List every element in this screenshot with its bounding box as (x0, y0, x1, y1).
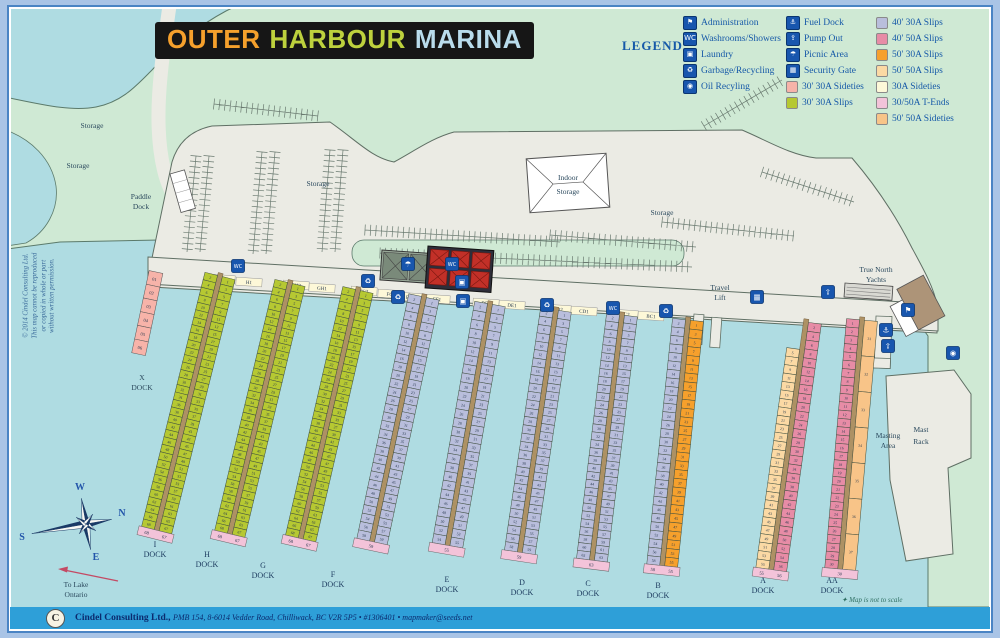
svg-text:41: 41 (769, 503, 773, 508)
title-word-outer: OUTER (167, 24, 261, 54)
svg-text:12: 12 (843, 413, 847, 417)
svg-text:46: 46 (657, 508, 661, 512)
svg-text:37: 37 (611, 456, 615, 460)
svg-text:17: 17 (552, 378, 556, 383)
svg-text:A: A (760, 576, 766, 585)
svg-text:24: 24 (600, 403, 604, 407)
svg-text:41: 41 (676, 499, 680, 503)
svg-text:WC: WC (609, 306, 618, 312)
legend-label: 30' 30A Slips (802, 98, 853, 108)
svg-text:28: 28 (528, 420, 532, 425)
svg-text:36: 36 (661, 466, 665, 470)
footer-bar: C Cindel Consulting Ltd., PMB 154, 8-601… (10, 607, 990, 629)
washrooms-icon: WC (683, 32, 697, 46)
svg-text:18: 18 (838, 463, 842, 467)
svg-text:51: 51 (671, 543, 675, 547)
svg-text:DOCK: DOCK (252, 571, 275, 580)
svg-text:54: 54 (585, 522, 589, 526)
svg-text:55: 55 (455, 541, 460, 546)
pump-out-icon: ⇪ (822, 286, 835, 299)
svg-text:22: 22 (835, 496, 839, 500)
svg-text:42: 42 (787, 503, 791, 508)
svg-text:52: 52 (781, 547, 785, 552)
legend-label: 30A Sideties (892, 82, 940, 92)
svg-text:♻: ♻ (544, 301, 551, 310)
pump-out-icon: ⇪ (882, 340, 895, 353)
svg-text:53: 53 (670, 552, 674, 556)
svg-text:29: 29 (545, 427, 549, 432)
svg-text:23: 23 (684, 420, 688, 424)
svg-text:34: 34 (524, 445, 528, 450)
laundry-icon: ▣ (683, 48, 697, 62)
svg-text:54: 54 (653, 542, 657, 546)
svg-text:51: 51 (458, 523, 463, 528)
svg-text:20: 20 (801, 405, 805, 410)
svg-text:45: 45 (608, 487, 612, 491)
svg-text:32: 32 (454, 439, 459, 444)
legend-item: WCWashrooms/Showers (683, 32, 781, 46)
svg-text:18: 18 (465, 376, 470, 381)
svg-text:50: 50 (655, 525, 659, 529)
svg-text:17: 17 (484, 377, 489, 382)
svg-text:44: 44 (658, 499, 662, 503)
washrooms-icon: WC (232, 260, 245, 273)
legend-label: 50' 50A Slips (892, 66, 943, 76)
svg-text:39: 39 (539, 467, 543, 472)
svg-text:12: 12 (538, 353, 542, 358)
svg-text:18: 18 (603, 379, 607, 383)
svg-text:18: 18 (669, 389, 673, 393)
svg-text:G: G (260, 561, 266, 570)
svg-text:50: 50 (440, 519, 445, 524)
svg-text:47: 47 (461, 506, 466, 511)
svg-text:21: 21 (685, 411, 689, 415)
svg-text:24: 24 (667, 415, 671, 419)
svg-text:16: 16 (536, 369, 540, 374)
sidetie-GH1: GH1 (309, 283, 335, 293)
swatch-sidetieA (876, 81, 888, 93)
footer-details: PMB 154, 8-6014 Vedder Road, Chilliwack,… (173, 613, 473, 622)
svg-text:22: 22 (668, 406, 672, 410)
garbage-recycling-icon: ♻ (660, 305, 673, 318)
garbage-recycling-icon: ♻ (683, 64, 697, 78)
svg-text:22: 22 (800, 414, 804, 419)
svg-text:53: 53 (456, 532, 461, 537)
svg-text:39: 39 (770, 495, 774, 500)
swatch-sidetie30 (786, 81, 798, 93)
svg-text:45: 45 (767, 520, 771, 525)
svg-text:21: 21 (481, 394, 486, 399)
svg-text:21: 21 (836, 488, 840, 492)
svg-text:GH1: GH1 (317, 287, 328, 293)
copyright-line: or copied in whole or part (40, 214, 49, 378)
svg-text:32: 32 (596, 435, 600, 439)
swatch-tend (876, 97, 888, 109)
legend-label: 30/50A T-Ends (892, 98, 949, 108)
svg-text:DE1: DE1 (507, 304, 517, 310)
svg-text:47: 47 (607, 494, 611, 498)
svg-text:43: 43 (609, 479, 613, 483)
svg-text:31: 31 (544, 435, 548, 440)
map-title: OUTERHARBOURMARINA (155, 22, 534, 59)
svg-text:42: 42 (591, 474, 595, 478)
svg-text:⚑: ⚑ (905, 306, 912, 315)
svg-text:39: 39 (467, 472, 472, 477)
legend-label: Washrooms/Showers (701, 34, 781, 44)
svg-text:32: 32 (793, 458, 797, 463)
map-label: Storage (67, 161, 91, 170)
legend-label: Oil Recyling (701, 82, 750, 92)
svg-text:16: 16 (840, 446, 844, 450)
legend-item: 30' 30A Sideties (786, 80, 864, 94)
svg-text:11: 11 (556, 354, 560, 359)
pump-out-icon: ⇪ (786, 32, 800, 46)
svg-text:33: 33 (472, 446, 477, 451)
sidetie-H1: H1 (236, 277, 262, 287)
svg-text:44: 44 (445, 493, 450, 498)
svg-text:30: 30 (830, 562, 834, 566)
svg-text:50: 50 (587, 506, 591, 510)
svg-text:29: 29 (830, 554, 834, 558)
svg-text:49: 49 (606, 502, 610, 506)
map-label: Travel (710, 283, 729, 292)
svg-text:47: 47 (765, 528, 769, 533)
svg-text:WC: WC (234, 264, 243, 270)
svg-text:27: 27 (616, 418, 620, 422)
svg-text:35: 35 (773, 478, 777, 483)
svg-text:◉: ◉ (950, 349, 957, 358)
svg-text:56: 56 (511, 537, 515, 542)
map-label: Dock (133, 202, 149, 211)
svg-text:11: 11 (843, 405, 847, 409)
title-word-marina: MARINA (415, 24, 522, 54)
legend-services-column: ⚓Fuel Dock⇪Pump Out☂Picnic Area▦Security… (786, 16, 864, 110)
svg-text:WC: WC (448, 262, 457, 268)
svg-text:♻: ♻ (663, 307, 670, 316)
svg-text:▣: ▣ (458, 278, 465, 287)
svg-text:35: 35 (470, 454, 475, 459)
svg-text:38: 38 (593, 458, 597, 462)
svg-text:33: 33 (543, 443, 547, 448)
map-label: To Lake (64, 580, 89, 589)
svg-text:33: 33 (680, 464, 684, 468)
svg-text:N: N (118, 508, 126, 519)
svg-text:53: 53 (531, 524, 535, 529)
map-label: Rack (913, 437, 929, 446)
svg-text:BC1: BC1 (646, 315, 656, 321)
svg-text:52: 52 (654, 533, 658, 537)
svg-text:31: 31 (681, 455, 685, 459)
svg-text:45: 45 (674, 517, 678, 521)
legend-item: ▣Laundry (683, 48, 781, 62)
svg-text:17: 17 (621, 379, 625, 383)
svg-text:55: 55 (669, 560, 673, 564)
true-north-yachts-building (844, 283, 893, 300)
svg-text:41: 41 (465, 480, 470, 485)
svg-text:DOCK: DOCK (144, 550, 167, 559)
svg-text:C: C (585, 579, 590, 588)
svg-text:14: 14 (469, 359, 474, 364)
garbage-recycling-icon: ♻ (362, 275, 375, 288)
svg-text:40: 40 (592, 466, 596, 470)
svg-text:24: 24 (798, 423, 802, 428)
svg-text:15: 15 (622, 372, 626, 376)
legend-slips-column: 40' 30A Slips40' 50A Slips50' 30A Slips5… (876, 16, 954, 126)
svg-text:24: 24 (531, 403, 535, 408)
svg-text:31: 31 (614, 433, 618, 437)
svg-text:35: 35 (542, 451, 546, 456)
not-to-scale-note: ✦ Map is not to scale (842, 596, 903, 604)
legend-label: 50' 30A Slips (892, 50, 943, 60)
svg-text:12: 12 (606, 356, 610, 360)
svg-text:50: 50 (782, 538, 786, 543)
svg-text:39: 39 (610, 464, 614, 468)
map-label: DOCK (131, 383, 153, 392)
svg-text:40: 40 (788, 494, 792, 499)
svg-text:11: 11 (787, 376, 791, 380)
svg-text:13: 13 (842, 421, 846, 425)
cindel-logo: C (46, 609, 65, 628)
svg-text:52: 52 (513, 520, 517, 525)
legend-item: ▦Security Gate (786, 64, 864, 78)
copyright-line: © 2014 Cindel Consulting Ltd. (22, 214, 31, 378)
svg-text:16: 16 (467, 368, 472, 373)
svg-text:56: 56 (779, 565, 783, 570)
legend: LEGEND ⚑AdministrationWCWashrooms/Shower… (605, 12, 995, 142)
svg-text:24: 24 (834, 513, 838, 517)
svg-text:40: 40 (521, 470, 525, 475)
svg-text:55: 55 (529, 532, 533, 537)
swatch-sidetie50_50 (876, 113, 888, 125)
svg-text:34: 34 (858, 444, 862, 448)
legend-item: ◉Oil Recyling (683, 80, 781, 94)
svg-text:23: 23 (618, 402, 622, 406)
sidetie-CD1: CD1 (571, 306, 597, 316)
legend-label: Fuel Dock (804, 18, 844, 28)
svg-text:10: 10 (472, 341, 477, 346)
svg-text:15: 15 (554, 370, 558, 375)
svg-text:25: 25 (617, 410, 621, 414)
svg-text:H: H (204, 550, 210, 559)
svg-text:35: 35 (612, 448, 616, 452)
svg-text:☂: ☂ (405, 260, 412, 269)
svg-text:62: 62 (581, 553, 585, 557)
svg-text:48: 48 (442, 511, 447, 516)
svg-text:39: 39 (677, 490, 681, 494)
svg-text:26: 26 (666, 423, 670, 427)
svg-text:49: 49 (459, 515, 464, 520)
svg-text:DOCK: DOCK (436, 585, 459, 594)
garbage-recycling-icon: ♻ (541, 299, 554, 312)
footer-company: Cindel Consulting Ltd., (75, 613, 171, 623)
legend-item: ☂Picnic Area (786, 48, 864, 62)
svg-text:44: 44 (786, 512, 790, 517)
svg-text:20: 20 (837, 479, 841, 483)
svg-text:27: 27 (476, 420, 481, 425)
swatch-slip50_30 (876, 49, 888, 61)
svg-text:43: 43 (537, 483, 541, 488)
svg-text:DOCK: DOCK (322, 580, 345, 589)
svg-text:49: 49 (764, 537, 768, 542)
svg-text:14: 14 (671, 372, 675, 376)
svg-text:37: 37 (771, 486, 775, 491)
svg-text:48: 48 (588, 498, 592, 502)
svg-text:23: 23 (549, 402, 553, 407)
svg-text:♻: ♻ (395, 293, 402, 302)
svg-text:31: 31 (775, 461, 779, 466)
svg-text:10: 10 (673, 355, 677, 359)
svg-text:38: 38 (660, 474, 664, 478)
legend-label: 30' 30A Sideties (802, 82, 864, 92)
svg-text:42: 42 (659, 491, 663, 495)
svg-text:33: 33 (774, 469, 778, 474)
svg-text:⇪: ⇪ (825, 288, 831, 297)
svg-text:54: 54 (780, 556, 784, 561)
svg-text:12: 12 (672, 364, 676, 368)
svg-text:DOCK: DOCK (821, 586, 844, 595)
legend-label: Security Gate (804, 66, 856, 76)
svg-text:26: 26 (459, 412, 464, 417)
svg-text:46: 46 (517, 495, 521, 500)
svg-text:41: 41 (538, 475, 542, 480)
svg-text:32: 32 (663, 449, 667, 453)
svg-text:19: 19 (482, 386, 487, 391)
svg-text:13: 13 (689, 376, 693, 380)
legend-label: 40' 50A Slips (892, 34, 943, 44)
security-gate-icon: ▦ (751, 291, 764, 304)
map-label: Storage (651, 208, 675, 217)
svg-text:12: 12 (470, 350, 475, 355)
svg-text:10: 10 (607, 348, 611, 352)
map-label: Masting (876, 431, 901, 440)
copyright-notice: © 2014 Cindel Consulting Ltd.This map ca… (22, 214, 57, 378)
svg-text:59: 59 (527, 548, 531, 553)
svg-text:54: 54 (437, 537, 442, 542)
svg-text:F: F (331, 570, 336, 579)
svg-text:21: 21 (781, 418, 785, 423)
svg-text:36: 36 (523, 453, 527, 458)
legend-item: ⚓Fuel Dock (786, 16, 864, 30)
svg-text:53: 53 (604, 517, 608, 521)
svg-text:18: 18 (802, 397, 806, 402)
svg-text:E: E (93, 552, 100, 563)
svg-text:10: 10 (844, 396, 848, 400)
svg-text:12: 12 (806, 370, 810, 375)
svg-text:23: 23 (835, 504, 839, 508)
svg-text:48: 48 (783, 529, 787, 534)
svg-text:30: 30 (456, 430, 461, 435)
svg-text:22: 22 (532, 395, 536, 400)
svg-text:15: 15 (840, 438, 844, 442)
svg-text:38: 38 (790, 485, 794, 490)
svg-text:AA: AA (826, 576, 838, 585)
svg-text:20: 20 (464, 385, 469, 390)
svg-text:28: 28 (831, 546, 835, 550)
svg-text:40: 40 (660, 482, 664, 486)
svg-text:56: 56 (584, 530, 588, 534)
svg-text:36: 36 (852, 515, 856, 519)
svg-text:52: 52 (439, 528, 444, 533)
legend-item: 30A Sideties (876, 80, 954, 94)
svg-text:25: 25 (833, 521, 837, 525)
svg-text:44: 44 (518, 486, 522, 491)
map-label: True North (859, 265, 893, 274)
map-label: X (139, 373, 145, 382)
picnic-area-icon: ☂ (786, 48, 800, 62)
legend-item: 30' 30A Slips (786, 96, 864, 110)
svg-text:46: 46 (589, 490, 593, 494)
legend-label: Garbage/Recycling (701, 66, 774, 76)
svg-text:19: 19 (782, 410, 786, 415)
svg-text:53: 53 (762, 554, 766, 559)
map-label: Paddle (131, 192, 152, 201)
svg-text:⇪: ⇪ (885, 342, 891, 351)
svg-text:30: 30 (527, 428, 531, 433)
svg-text:32: 32 (526, 436, 530, 441)
svg-text:45: 45 (462, 498, 467, 503)
svg-text:20: 20 (533, 386, 537, 391)
legend-heading: LEGEND (622, 38, 683, 54)
svg-text:55: 55 (761, 562, 765, 567)
fuel-dock-icon: ⚓ (880, 324, 893, 337)
map-label: Storage (81, 121, 105, 130)
svg-text:48: 48 (516, 503, 520, 508)
legend-item: 50' 50A Sideties (876, 112, 954, 126)
svg-text:16: 16 (670, 381, 674, 385)
svg-text:50: 50 (514, 512, 518, 517)
svg-text:11: 11 (624, 356, 628, 360)
title-word-harbour: HARBOUR (270, 24, 406, 54)
svg-text:49: 49 (672, 534, 676, 538)
legend-label: Pump Out (804, 34, 843, 44)
legend-label: Administration (701, 18, 759, 28)
svg-text:29: 29 (681, 446, 685, 450)
svg-text:20: 20 (668, 398, 672, 402)
svg-text:26: 26 (599, 411, 603, 415)
garbage-recycling-icon: ♻ (392, 291, 405, 304)
svg-text:S: S (19, 532, 25, 543)
svg-text:58: 58 (509, 545, 513, 550)
svg-text:36: 36 (594, 450, 598, 454)
svg-text:41: 41 (609, 471, 613, 475)
svg-text:24: 24 (461, 403, 466, 408)
svg-text:51: 51 (605, 510, 609, 514)
svg-text:43: 43 (675, 508, 679, 512)
svg-text:26: 26 (832, 529, 836, 533)
svg-text:B: B (655, 581, 660, 590)
svg-text:14: 14 (805, 379, 809, 384)
legend-item: 40' 30A Slips (876, 16, 954, 30)
svg-text:13: 13 (555, 362, 559, 367)
svg-text:16: 16 (803, 388, 807, 393)
svg-text:▦: ▦ (753, 293, 760, 302)
svg-text:W: W (75, 482, 85, 493)
swatch-slip40_30 (876, 17, 888, 29)
svg-text:19: 19 (837, 471, 841, 475)
laundry-icon: ▣ (456, 276, 469, 289)
svg-text:51: 51 (532, 515, 536, 520)
svg-text:57: 57 (528, 540, 532, 545)
svg-text:13: 13 (786, 385, 790, 390)
svg-text:37: 37 (468, 463, 473, 468)
administration-icon: ⚑ (683, 16, 697, 30)
svg-text:47: 47 (534, 499, 538, 504)
svg-text:H1: H1 (246, 281, 253, 286)
svg-text:28: 28 (598, 419, 602, 423)
svg-text:17: 17 (839, 454, 843, 458)
oil-recycling-icon: ◉ (947, 347, 960, 360)
svg-text:27: 27 (777, 444, 781, 449)
